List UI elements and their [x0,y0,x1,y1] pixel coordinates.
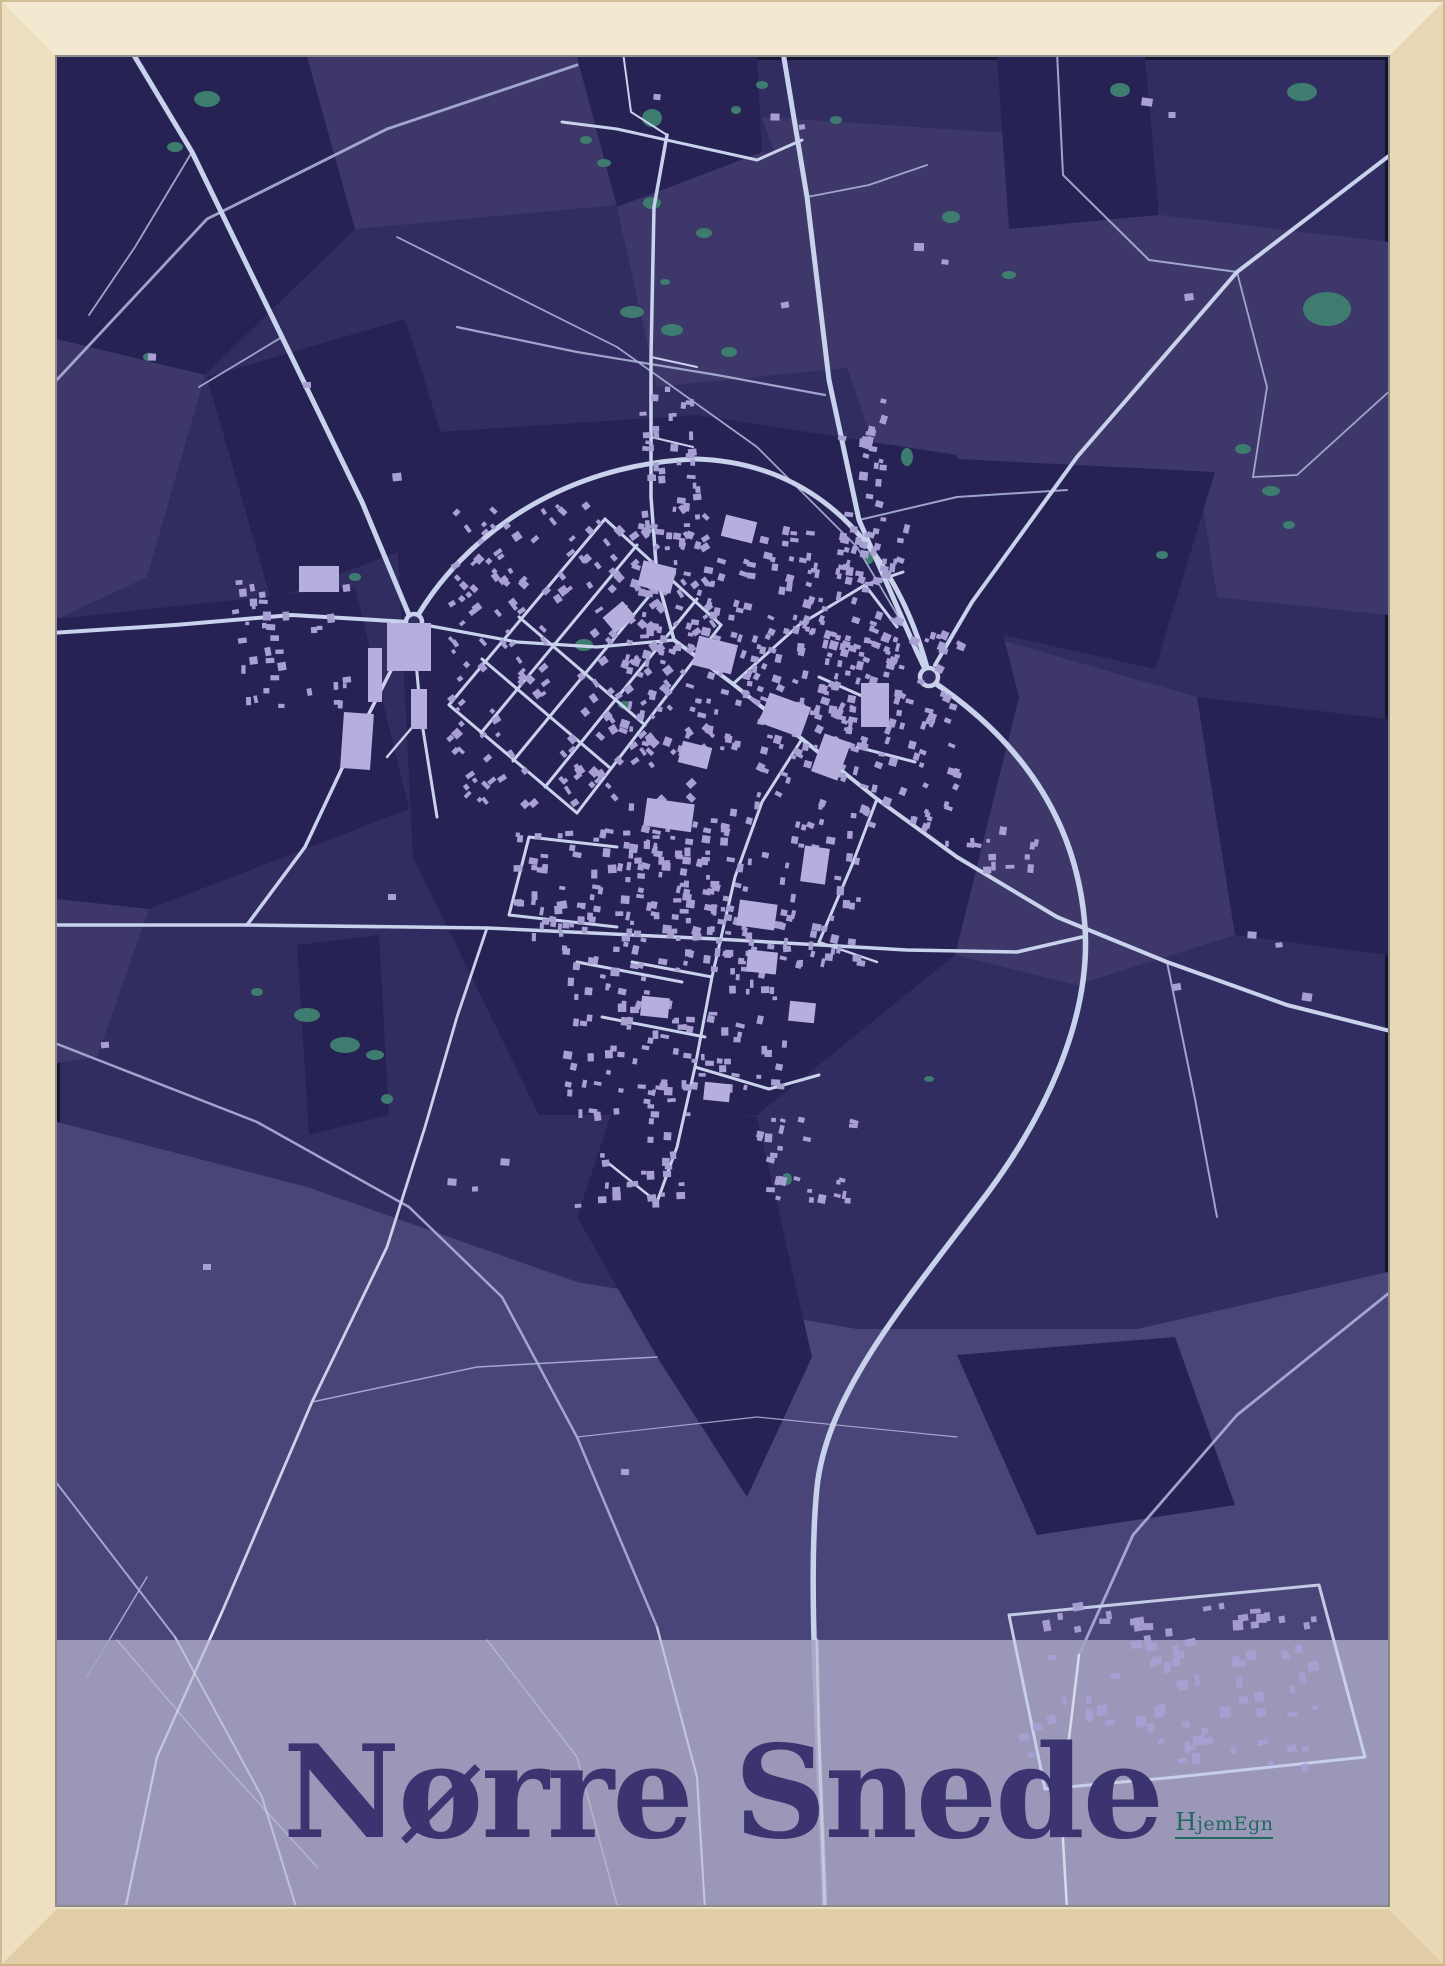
brand-logo: HjemEgn [1175,1807,1273,1839]
map-poster: Nørre Snede HjemEgn [57,57,1388,1905]
framed-map-poster: Nørre Snede HjemEgn [0,0,1445,1966]
city-map-graphic [57,57,1388,1905]
